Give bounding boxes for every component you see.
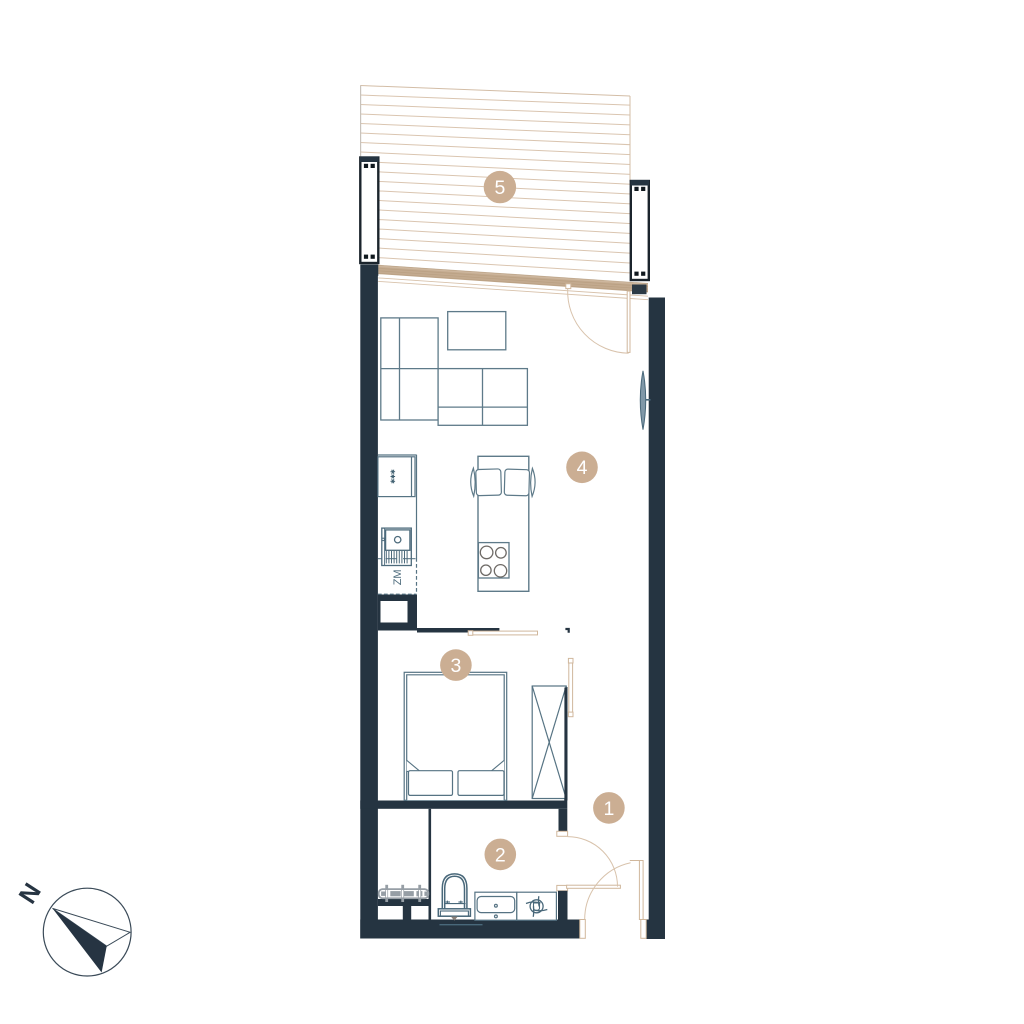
svg-text:3: 3 (450, 655, 461, 677)
svg-text:4: 4 (577, 457, 588, 479)
svg-text:5: 5 (494, 177, 505, 199)
svg-text:1: 1 (603, 798, 614, 820)
svg-text:N: N (14, 878, 47, 908)
svg-text:ZM: ZM (392, 569, 404, 585)
svg-text:2: 2 (495, 844, 506, 866)
